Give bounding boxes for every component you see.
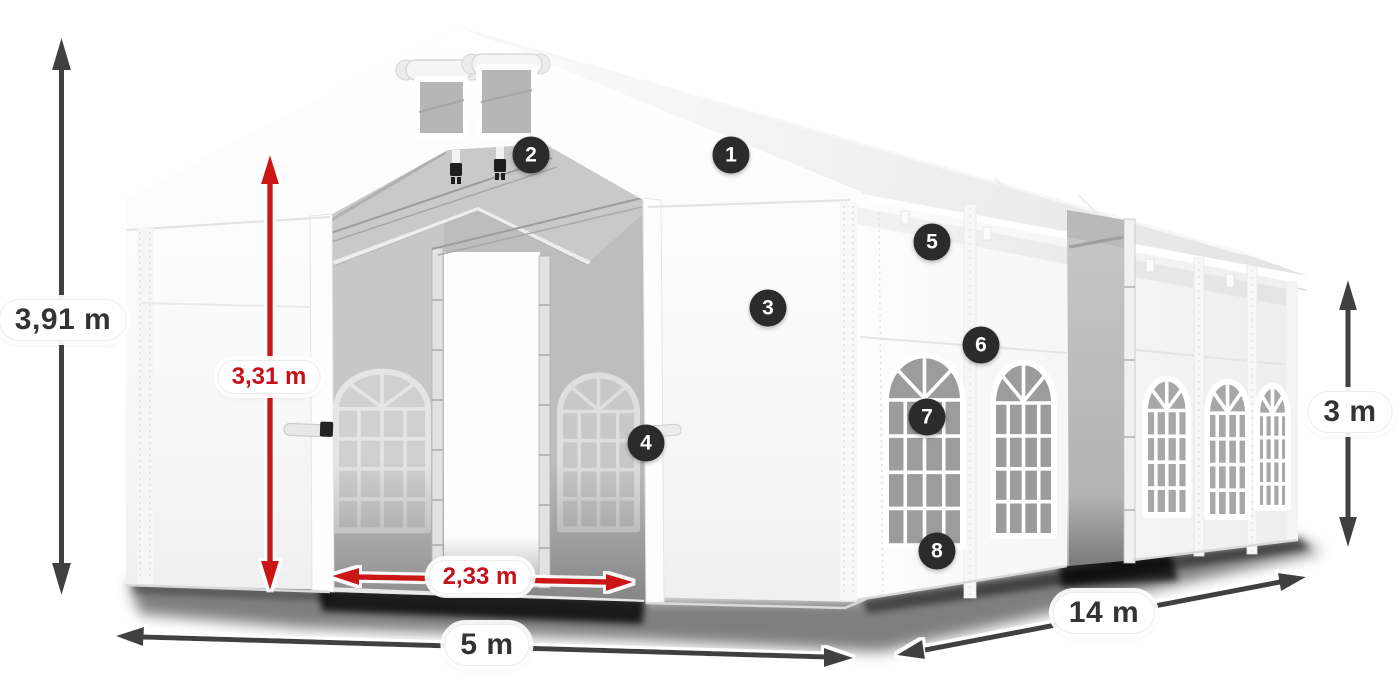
dimension-label-inner-height: 3,31 m <box>218 360 321 394</box>
front-entrance-opening <box>314 144 650 605</box>
front-right-corner-post <box>840 202 857 600</box>
right-door-fold <box>643 198 664 603</box>
dimension-label-front-width: 5 m <box>444 624 529 666</box>
callout-badge-3: 3 <box>750 290 787 327</box>
callout-badge-2: 2 <box>513 137 550 174</box>
side-door-pole <box>1124 219 1135 563</box>
arched-window <box>1145 379 1288 517</box>
callout-badge-5: 5 <box>914 224 951 261</box>
callout-badge-1: 1 <box>713 137 750 174</box>
callout-badge-6: 6 <box>963 327 1000 364</box>
dimension-label-side-length: 14 m <box>1053 592 1155 634</box>
callout-badge-4: 4 <box>628 425 665 462</box>
side-door-opening <box>1067 210 1135 566</box>
callout-badge-7: 7 <box>909 399 946 436</box>
dimension-label-side-height: 3 m <box>1307 391 1392 433</box>
left-door-fold <box>310 214 334 592</box>
tent-dimension-diagram: 3,91 m 3,31 m 2,33 m 5 m 14 m 3 m 1 2 3 … <box>0 0 1400 700</box>
callout-badge-8: 8 <box>919 533 956 570</box>
dimension-label-total-height: 3,91 m <box>0 299 127 341</box>
tent-illustration-svg <box>0 0 1400 700</box>
dimension-label-entrance-width: 2,33 m <box>429 560 532 594</box>
